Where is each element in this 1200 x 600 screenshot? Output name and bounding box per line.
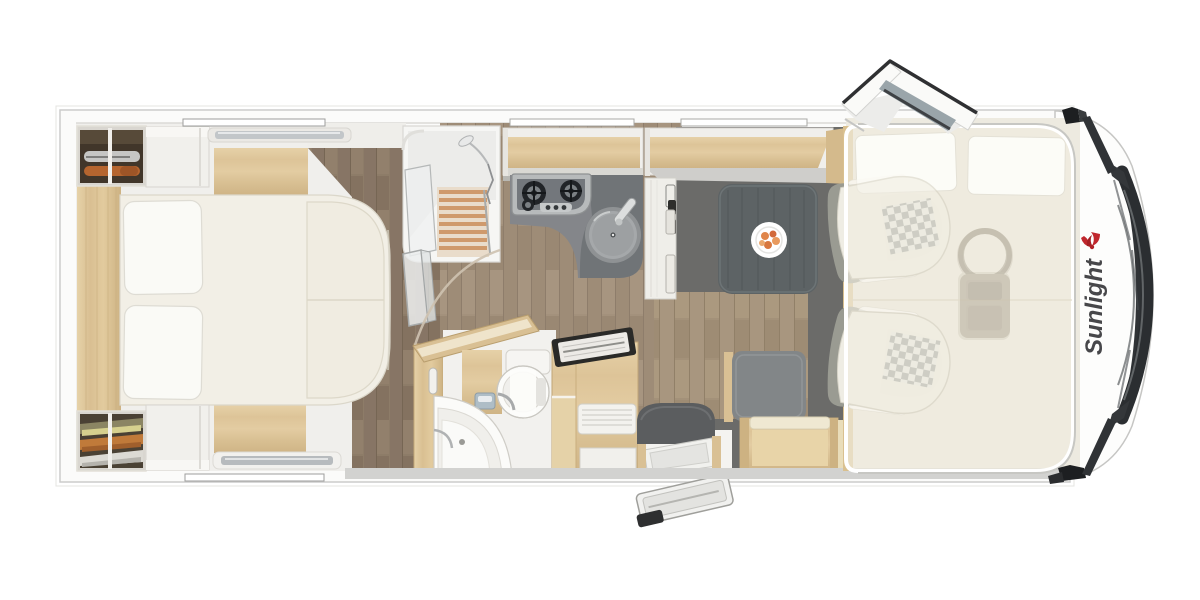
svg-text:Sunlight: Sunlight [1081, 258, 1108, 355]
